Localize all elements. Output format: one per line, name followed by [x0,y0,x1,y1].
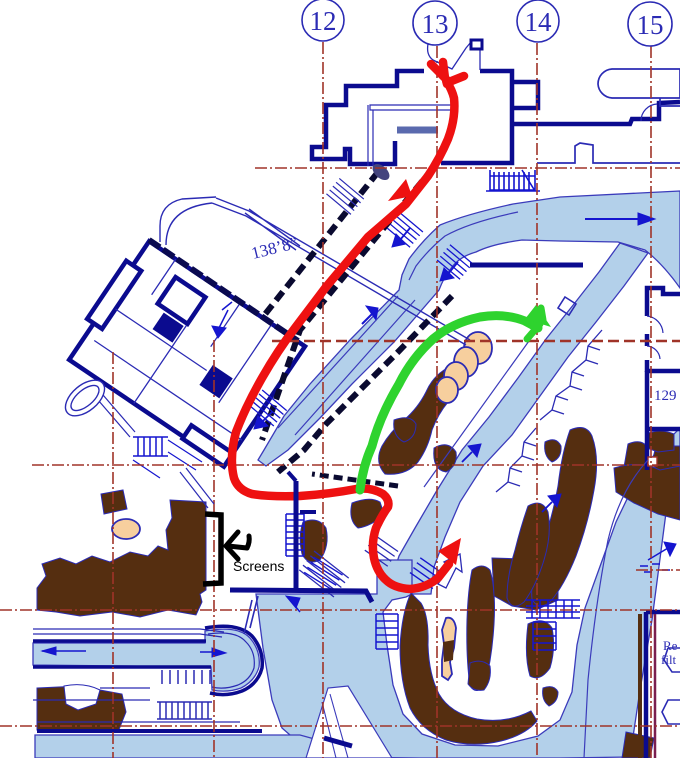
svg-text:Re: Re [663,638,678,653]
svg-text:13: 13 [422,9,449,39]
svg-text:14: 14 [525,7,553,37]
svg-text:filt: filt [661,652,677,667]
svg-text:Screens: Screens [233,558,284,574]
svg-text:12: 12 [310,6,337,36]
svg-text:129: 129 [654,388,677,404]
svg-text:15: 15 [637,10,664,40]
